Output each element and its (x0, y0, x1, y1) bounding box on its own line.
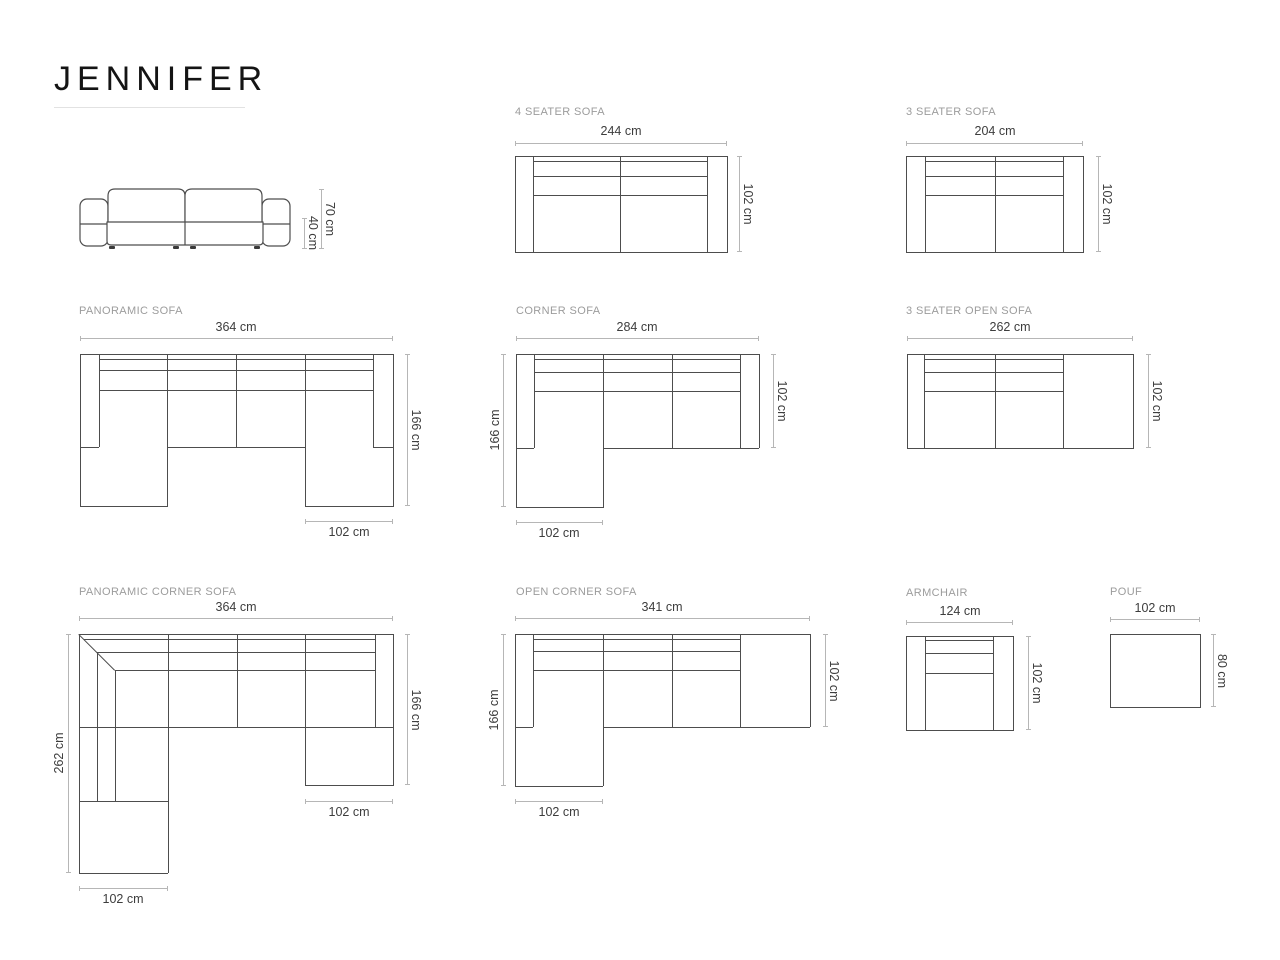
seam-line (515, 727, 533, 728)
corner-width-dim: 284 cm (617, 320, 658, 334)
outline-line (516, 354, 759, 355)
seam-line (80, 447, 99, 448)
panoramic-corner-label: PANORAMIC CORNER SOFA (79, 586, 236, 598)
seam-line (1063, 156, 1064, 252)
outline-line (393, 634, 394, 785)
dimension-line (825, 634, 826, 727)
seam-line (924, 372, 1063, 373)
seam-line (533, 651, 740, 652)
outline-line (515, 786, 603, 787)
seam-line (534, 372, 740, 373)
panoramic-corner-right-depth-dim: 166 cm (409, 690, 423, 731)
seam-line (115, 670, 116, 801)
outline-line (906, 730, 1014, 731)
dimension-line (304, 218, 305, 249)
seam-line (533, 195, 707, 196)
front-seat-height-dim: 40 cm (306, 216, 320, 250)
seam-line (603, 354, 604, 507)
outline-line (906, 636, 907, 730)
outline-line (727, 156, 728, 252)
front-total-height-dim: 70 cm (323, 202, 337, 236)
seam-line (995, 156, 996, 252)
outline-line (516, 354, 517, 507)
seam-line (533, 176, 707, 177)
outline-line (907, 354, 1133, 355)
three-seater-label: 3 SEATER SOFA (906, 106, 996, 118)
outline-line (305, 506, 394, 507)
panoramic-corner-chaise-right-dim: 102 cm (329, 805, 370, 819)
armchair-width-dim: 124 cm (940, 604, 981, 618)
seam-line (534, 391, 740, 392)
seam-line (672, 354, 673, 448)
dimension-line (906, 143, 1083, 144)
seam-line (373, 354, 374, 447)
outline-line (907, 448, 1134, 449)
dimension-line (515, 618, 810, 619)
seam-line (620, 156, 621, 252)
seam-line (925, 176, 1063, 177)
dimension-line (773, 354, 774, 448)
dimension-line (907, 338, 1133, 339)
seam-line (533, 634, 534, 727)
dimension-line (516, 338, 759, 339)
outline-line (516, 507, 604, 508)
outline-line (603, 727, 810, 728)
dimension-line (305, 521, 393, 522)
seam-line (925, 673, 993, 674)
panoramic-corner-chaise-bottom-dim: 102 cm (103, 892, 144, 906)
pouf-width-dim: 102 cm (1135, 601, 1176, 615)
seam-line (925, 156, 926, 252)
dimension-line (1110, 619, 1200, 620)
seam-line (99, 390, 373, 391)
four-seater-depth-dim: 102 cm (741, 184, 755, 225)
outline-line (759, 354, 760, 448)
panoramic-depth-dim: 166 cm (409, 410, 423, 451)
panoramic-width-dim: 364 cm (216, 320, 257, 334)
outline-line (167, 447, 305, 448)
seam-line (925, 640, 993, 641)
outline-line (79, 634, 80, 873)
seam-line (707, 156, 708, 252)
outline-line (79, 634, 393, 635)
outline-line (515, 634, 516, 786)
seam-line (533, 639, 740, 640)
outline-line (515, 156, 516, 252)
dimension-line (321, 189, 322, 249)
outline-line (80, 506, 168, 507)
outline-line (810, 634, 811, 727)
seam-line (924, 359, 1063, 360)
front-view-sofa-drawing (75, 183, 340, 255)
dimension-line (407, 354, 408, 506)
three-seater-open-label: 3 SEATER OPEN SOFA (906, 305, 1032, 317)
three-seater-open-width-dim: 262 cm (990, 320, 1031, 334)
dimension-line (80, 338, 393, 339)
seam-line (534, 354, 535, 448)
corner-right-depth-dim: 102 cm (775, 381, 789, 422)
seam-line (924, 391, 1063, 392)
seam-line (97, 652, 375, 653)
outline-line (906, 156, 907, 252)
dimension-line (68, 634, 69, 873)
seam-line (305, 354, 306, 506)
dimension-line (79, 618, 393, 619)
corner-chaise-dim: 102 cm (539, 526, 580, 540)
dimension-line (515, 143, 727, 144)
seam-line (603, 634, 604, 786)
outline-line (1110, 634, 1111, 707)
open-corner-label: OPEN CORNER SOFA (516, 586, 637, 598)
spec-sheet: JENNIFER 70 cm 40 cm (0, 0, 1280, 960)
open-corner-width-dim: 341 cm (642, 600, 683, 614)
title-underline (54, 107, 245, 108)
page-title: JENNIFER (54, 60, 268, 99)
seam-line (99, 354, 100, 447)
outline-line (1200, 634, 1201, 708)
dimension-line (407, 634, 408, 785)
seam-line (115, 670, 375, 671)
outline-line (515, 634, 810, 635)
outline-line (603, 448, 759, 449)
seam-line (84, 639, 375, 640)
seam-line (1063, 354, 1064, 448)
seam-line (925, 653, 993, 654)
seam-line (995, 354, 996, 448)
seam-line (167, 354, 168, 506)
seam-line (79, 727, 393, 728)
armchair-depth-dim: 102 cm (1030, 663, 1044, 704)
outline-line (1110, 634, 1200, 635)
four-seater-label: 4 SEATER SOFA (515, 106, 605, 118)
dimension-line (1148, 354, 1149, 448)
dimension-line (503, 634, 504, 786)
seam-line (79, 801, 168, 802)
outline-line (1133, 354, 1134, 448)
seam-line (740, 354, 741, 448)
four-seater-width-dim: 244 cm (601, 124, 642, 138)
open-corner-left-depth-dim: 166 cm (487, 690, 501, 731)
dimension-line (305, 801, 393, 802)
dimension-line (1213, 634, 1214, 707)
dimension-line (79, 888, 168, 889)
seam-line (533, 161, 707, 162)
seam-line (740, 634, 741, 727)
panoramic-corner-left-depth-dim: 262 cm (52, 733, 66, 774)
dimension-line (516, 522, 603, 523)
seam-line (925, 195, 1063, 196)
open-corner-chaise-dim: 102 cm (539, 805, 580, 819)
outline-line (80, 354, 81, 506)
armchair-label: ARMCHAIR (906, 587, 968, 599)
dimension-line (1028, 636, 1029, 730)
three-seater-open-depth-dim: 102 cm (1150, 381, 1164, 422)
seam-line (534, 359, 740, 360)
outline-line (1110, 707, 1201, 708)
dimension-line (515, 801, 603, 802)
seam-line (375, 634, 376, 727)
dimension-line (503, 354, 504, 507)
outline-line (515, 156, 727, 157)
seam-line (99, 370, 373, 371)
seam-line (99, 359, 373, 360)
seam-line (516, 448, 534, 449)
outline-line (906, 636, 1013, 637)
seam-line (236, 354, 237, 447)
seam-line (924, 354, 925, 448)
outline-line (907, 354, 908, 448)
seam-line (925, 636, 926, 730)
outline-line (79, 873, 168, 874)
seam-line (672, 634, 673, 727)
three-seater-depth-dim: 102 cm (1100, 184, 1114, 225)
panoramic-label: PANORAMIC SOFA (79, 305, 183, 317)
corner-left-depth-dim: 166 cm (488, 410, 502, 451)
outline-line (515, 252, 728, 253)
outline-line (305, 785, 394, 786)
seam-line (533, 156, 534, 252)
dimension-line (1098, 156, 1099, 252)
seam-line (925, 161, 1063, 162)
seam-line (993, 636, 994, 730)
outline-line (906, 252, 1084, 253)
pouf-depth-dim: 80 cm (1215, 654, 1229, 688)
seam-line (373, 447, 393, 448)
pouf-label: POUF (1110, 586, 1142, 598)
outline-line (393, 354, 394, 506)
outline-line (1083, 156, 1084, 252)
dimension-line (739, 156, 740, 252)
seam-line (533, 670, 740, 671)
open-corner-right-depth-dim: 102 cm (827, 661, 841, 702)
three-seater-width-dim: 204 cm (975, 124, 1016, 138)
panoramic-corner-width-dim: 364 cm (216, 600, 257, 614)
panoramic-chaise-dim: 102 cm (329, 525, 370, 539)
outline-line (1013, 636, 1014, 730)
seam-line (237, 634, 238, 727)
dimension-line (906, 622, 1013, 623)
seam-line (305, 634, 306, 785)
corner-label: CORNER SOFA (516, 305, 600, 317)
